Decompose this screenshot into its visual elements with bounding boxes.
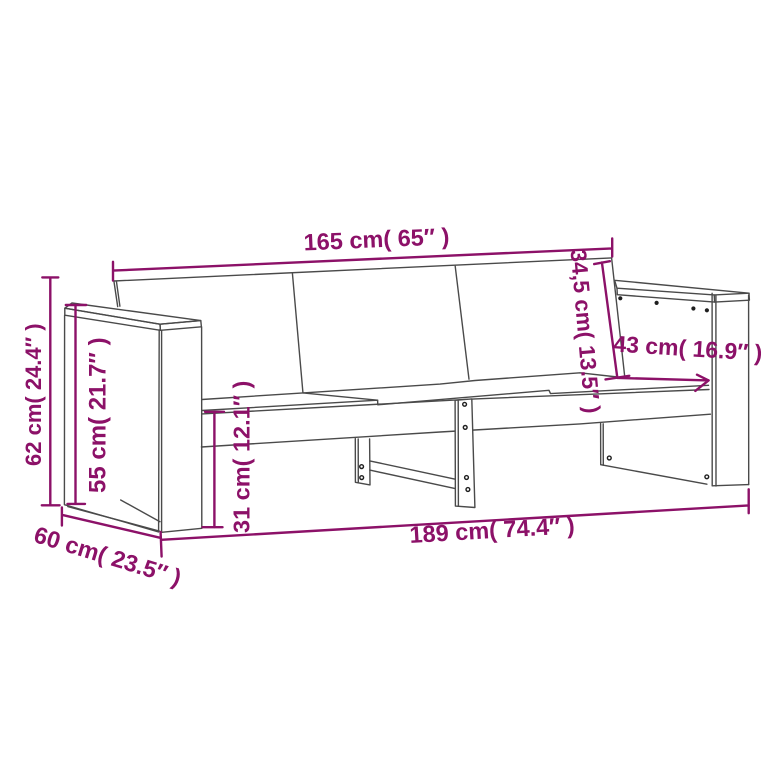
svg-text:55 cm( 21.7″ ): 55 cm( 21.7″ ) xyxy=(85,337,112,493)
svg-text:31 cm( 12.1″ ): 31 cm( 12.1″ ) xyxy=(229,381,255,533)
svg-text:62 cm( 24.4″ ): 62 cm( 24.4″ ) xyxy=(21,323,46,466)
